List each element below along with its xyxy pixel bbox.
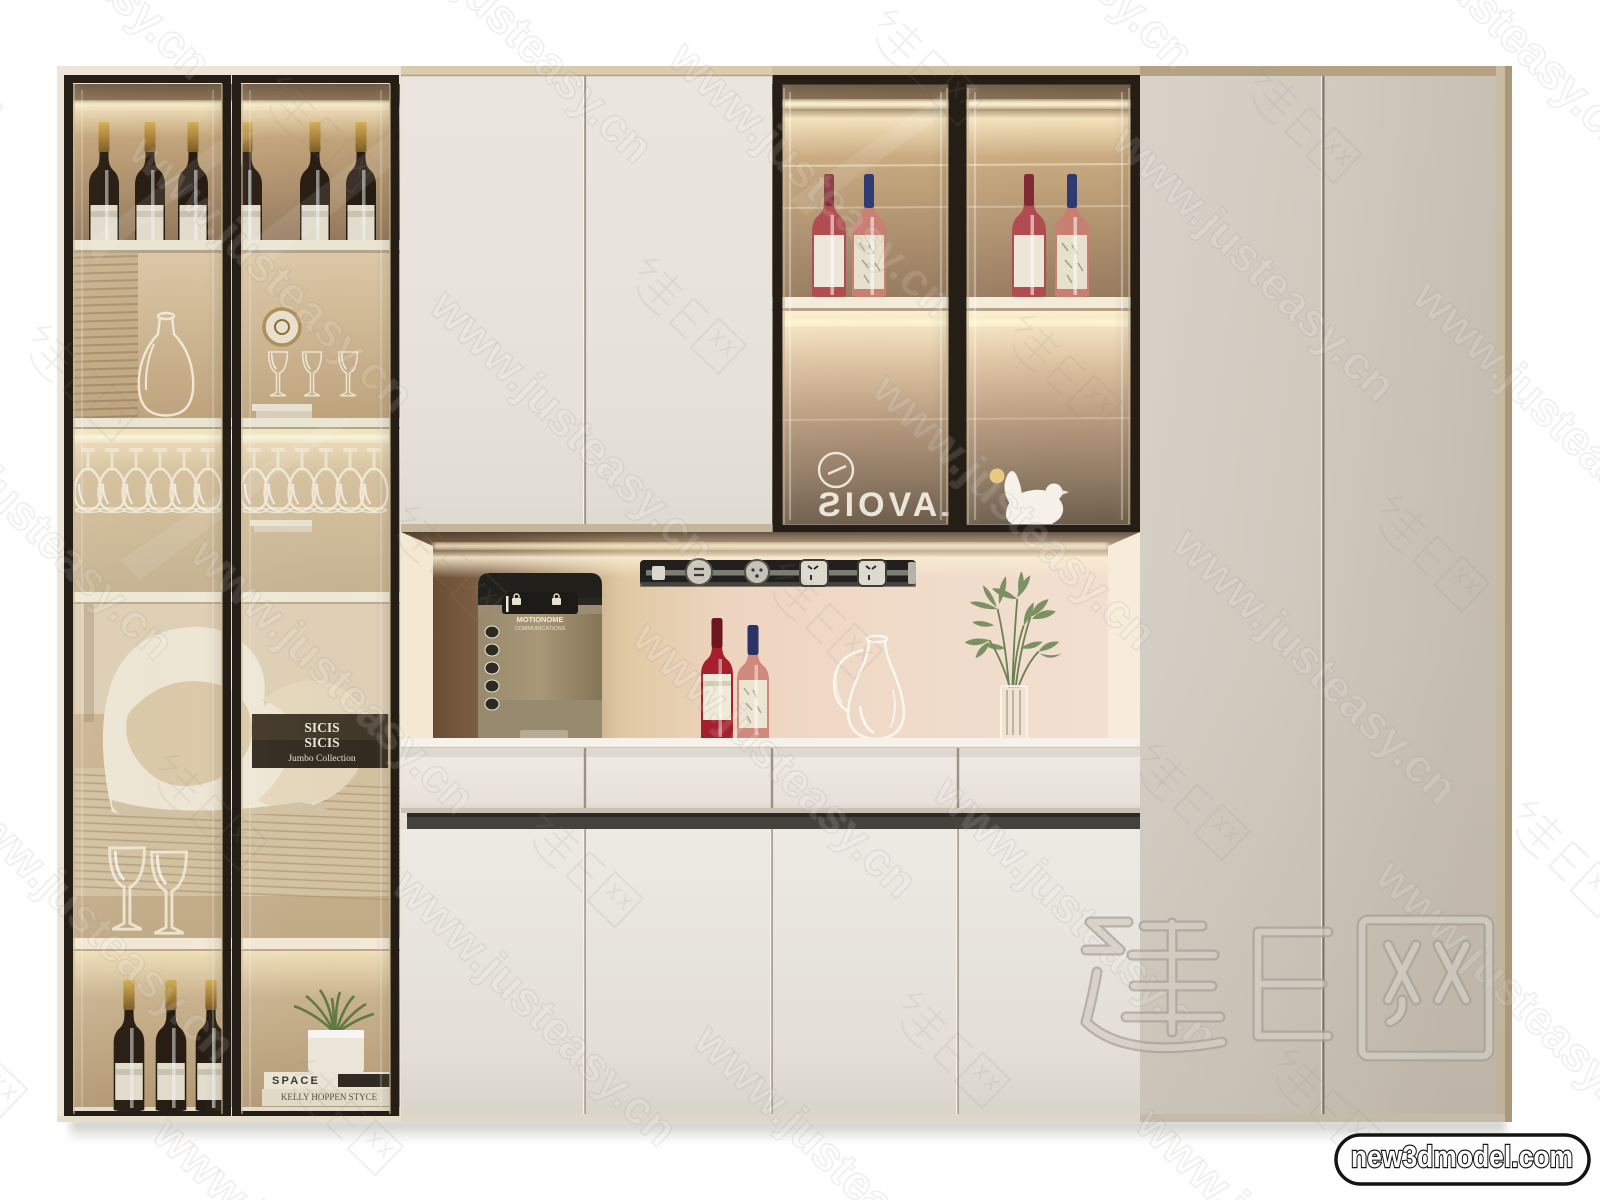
svg-text:new3dmodel.com: new3dmodel.com — [1351, 1139, 1573, 1174]
